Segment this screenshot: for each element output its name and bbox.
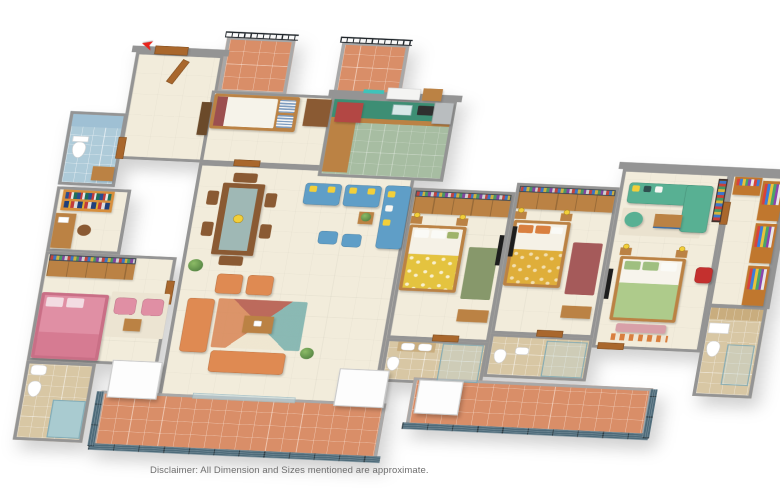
master-suite-door: [597, 342, 624, 350]
bath-vanity: [91, 166, 115, 181]
refrigerator: [431, 102, 454, 125]
pillow-white: [660, 262, 677, 271]
guest-pillow: [276, 115, 294, 128]
stone-wall-tile: [709, 307, 763, 321]
bathroom-sink: [30, 365, 48, 376]
guest-pillow: [278, 100, 296, 113]
pillow-green: [624, 261, 641, 270]
shower-glass: [46, 400, 86, 439]
accent-chair-pink: [113, 297, 138, 315]
pillow-orange: [518, 225, 534, 234]
balcony-utility-box: [413, 379, 463, 415]
accent-chair-pink: [140, 298, 165, 316]
pillow-yellow: [382, 219, 390, 225]
toilet-tank: [72, 136, 89, 142]
pillow-dark: [643, 186, 651, 192]
pillow-yellow: [387, 191, 395, 197]
balcony-utility-box: [333, 368, 390, 408]
bedroom-2-door: [432, 335, 459, 343]
pillow: [66, 298, 85, 308]
master-bed-blanket-green: [613, 282, 678, 320]
pillow-white: [385, 205, 393, 211]
guest-armoire: [302, 99, 332, 127]
pillow-green: [642, 262, 659, 271]
room-top-balcony-1: [218, 37, 296, 96]
ottoman-blue: [341, 234, 363, 248]
accent-chair-red: [694, 267, 714, 284]
dresser: [456, 309, 489, 323]
ottoman-blue: [317, 231, 339, 245]
main-entrance-door: [154, 46, 189, 56]
coffee-table-decor: [253, 321, 262, 327]
apartment-floorplan: [10, 30, 780, 487]
disclaimer-text: Disclaimer: All Dimension and Sizes ment…: [150, 465, 429, 476]
pillow-green: [447, 232, 460, 239]
desk-papers: [58, 217, 69, 223]
bathroom-sink: [418, 343, 433, 351]
bathroom-sink: [400, 343, 415, 351]
pillow: [551, 227, 564, 234]
kitchen-red-cabinet: [334, 102, 364, 123]
pillow: [431, 230, 447, 239]
pillow-orange: [535, 225, 551, 234]
pillow-yellow: [309, 186, 317, 192]
shower-glass: [540, 341, 587, 379]
bath-vanity: [708, 323, 730, 334]
pillow-yellow: [367, 188, 375, 194]
armchair-orange: [245, 275, 275, 296]
dining-chair: [218, 255, 244, 266]
bed-blanket-mustard: [507, 249, 563, 285]
pillow: [414, 229, 430, 238]
bathroom-sink: [515, 347, 530, 355]
closet-clothes: [736, 179, 760, 187]
kitchen-wall-cabinet-wood: [422, 88, 444, 101]
pillow-white: [655, 186, 663, 192]
sofa-orange-three-seat: [207, 350, 286, 375]
kitchen-wall-cabinet-white: [386, 88, 421, 101]
armchair-orange: [214, 273, 244, 294]
dresser: [560, 305, 592, 319]
powder-bath-wall-tile: [71, 114, 123, 129]
bed-blanket-yellow-floral: [402, 254, 458, 290]
kitchen-stove: [417, 106, 435, 116]
pillow-yellow: [349, 187, 357, 193]
pink-bed-blanket: [34, 332, 99, 358]
closet-clothes: [747, 268, 768, 290]
sofa-blue-loveseat: [302, 183, 342, 206]
shower-glass: [436, 344, 484, 384]
isometric-plan-wrapper: [10, 30, 780, 487]
pillow-yellow: [632, 185, 640, 191]
floorplan-canvas: ➤ Disclaimer: All Dimension and Sizes me…: [0, 0, 780, 490]
dining-chair: [233, 173, 259, 184]
lounge-table: [653, 214, 683, 229]
pillow: [45, 297, 64, 307]
guest-bedroom-door: [233, 159, 260, 167]
closet-clothes: [754, 226, 775, 248]
sofa-blue-loveseat: [342, 184, 382, 207]
side-table: [123, 318, 142, 331]
pillow-yellow: [327, 186, 335, 192]
kitchen-sink: [392, 104, 413, 115]
closet-clothes: [762, 184, 780, 206]
bedroom-3-door: [536, 330, 563, 338]
balcony-utility-box: [106, 360, 163, 400]
